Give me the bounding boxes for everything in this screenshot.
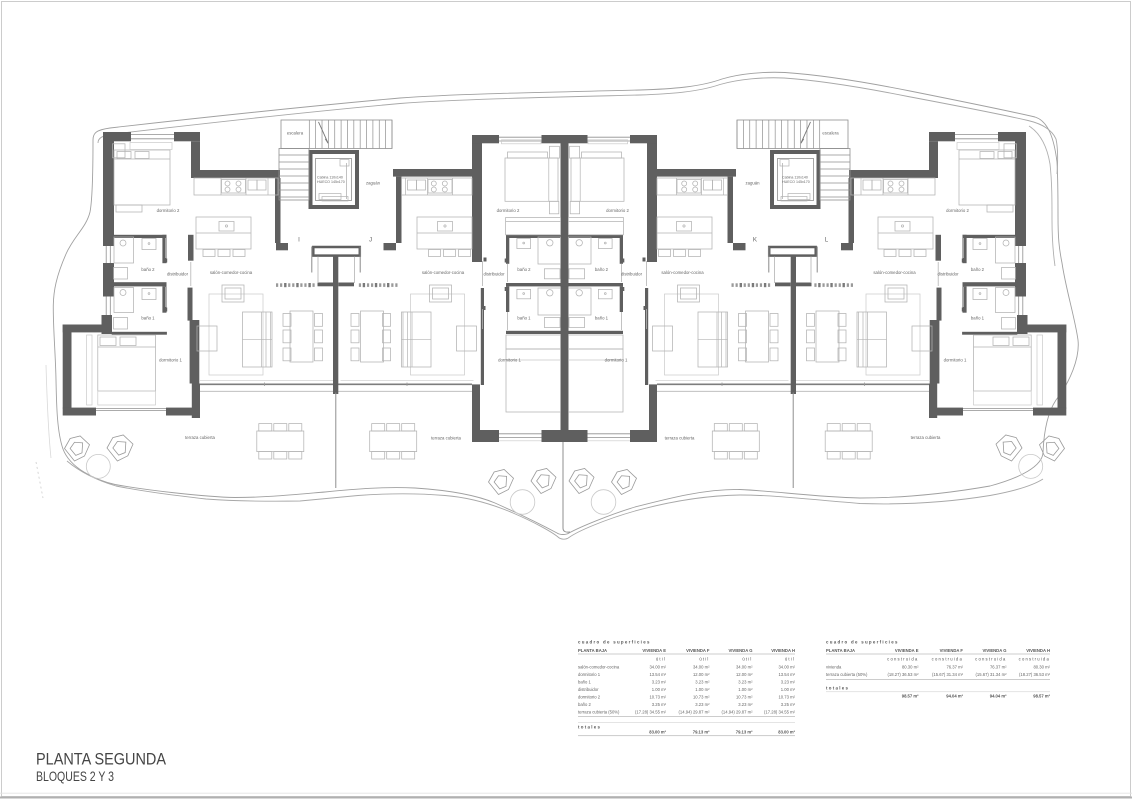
svg-text:terraza cubierta (50%): terraza cubierta (50%)	[826, 672, 868, 677]
svg-text:76.37 m²: 76.37 m²	[990, 665, 1007, 670]
svg-text:escalera: escalera	[287, 131, 304, 136]
svg-text:terraza cubierta (50%): terraza cubierta (50%)	[578, 710, 620, 715]
svg-text:baño 2: baño 2	[595, 267, 609, 272]
svg-text:3.25 m²: 3.25 m²	[781, 702, 796, 707]
svg-text:J: J	[369, 237, 372, 244]
svg-text:zaguán: zaguán	[745, 181, 760, 186]
svg-text:dormitorio 1: dormitorio 1	[578, 672, 601, 677]
svg-text:(14.94) 29.87 m²: (14.94) 29.87 m²	[722, 710, 754, 715]
svg-text:10.73 m²: 10.73 m²	[649, 695, 666, 700]
svg-text:PLANTA BAJA: PLANTA BAJA	[578, 648, 607, 653]
svg-text:3.25 m²: 3.25 m²	[652, 702, 667, 707]
svg-text:10.73 m²: 10.73 m²	[693, 695, 710, 700]
svg-text:baño 1: baño 1	[971, 316, 985, 321]
svg-text:distribuidor: distribuidor	[167, 272, 189, 277]
svg-text:baño 1: baño 1	[141, 316, 155, 321]
svg-text:3.23 m²: 3.23 m²	[652, 680, 667, 685]
svg-text:VIVIENDA E: VIVIENDA E	[895, 648, 919, 653]
svg-text:VIVIENDA F: VIVIENDA F	[940, 648, 964, 653]
svg-text:94.04 m²: 94.04 m²	[946, 694, 963, 699]
svg-text:12.00 m²: 12.00 m²	[736, 672, 753, 677]
svg-text:VIVIENDA H: VIVIENDA H	[1026, 648, 1050, 653]
svg-text:construida: construida	[887, 657, 918, 662]
svg-text:zaguán: zaguán	[366, 181, 381, 186]
svg-text:baño 1: baño 1	[595, 316, 609, 321]
svg-text:baño 2: baño 2	[517, 267, 531, 272]
svg-text:construida: construida	[932, 657, 963, 662]
svg-text:PLANTA BAJA: PLANTA BAJA	[826, 648, 855, 653]
svg-text:útil: útil	[785, 657, 795, 662]
svg-text:BLOQUES 2 Y 3: BLOQUES 2 Y 3	[36, 768, 114, 784]
svg-text:3.23 m²: 3.23 m²	[695, 680, 710, 685]
svg-text:vivienda: vivienda	[826, 665, 842, 670]
svg-text:dormitorio 1: dormitorio 1	[498, 358, 521, 363]
svg-text:(15.67) 31.34 m²: (15.67) 31.34 m²	[932, 672, 964, 677]
svg-text:(17.28) 34.55 m²: (17.28) 34.55 m²	[764, 710, 796, 715]
svg-text:VIVIENDA G: VIVIENDA G	[728, 648, 752, 653]
svg-text:10.73 m²: 10.73 m²	[778, 695, 795, 700]
svg-text:cuadro de superficies: cuadro de superficies	[578, 640, 651, 645]
svg-text:dormitorio 1: dormitorio 1	[159, 358, 182, 363]
svg-text:L: L	[825, 237, 829, 244]
svg-text:baño 1: baño 1	[578, 680, 591, 685]
svg-text:totales: totales	[578, 725, 601, 730]
svg-text:94.04 m²: 94.04 m²	[990, 694, 1007, 699]
svg-text:(14.94) 29.87 m²: (14.94) 29.87 m²	[679, 710, 711, 715]
svg-text:salón-comedor-cocina: salón-comedor-cocina	[210, 270, 253, 275]
svg-text:80.30 m²: 80.30 m²	[1033, 665, 1050, 670]
svg-text:(18.27) 36.53 m²: (18.27) 36.53 m²	[1019, 672, 1051, 677]
svg-text:baño 2: baño 2	[141, 267, 155, 272]
svg-text:salón-comedor-cocina: salón-comedor-cocina	[422, 270, 465, 275]
svg-text:baño 1: baño 1	[517, 316, 531, 321]
svg-text:útil: útil	[742, 657, 752, 662]
svg-text:VIVIENDA F: VIVIENDA F	[686, 648, 710, 653]
svg-text:terraza cubierta: terraza cubierta	[911, 435, 941, 440]
svg-text:34.00 m²: 34.00 m²	[693, 665, 710, 670]
svg-text:83.00 m²: 83.00 m²	[778, 730, 795, 735]
svg-text:dormitorio 2: dormitorio 2	[497, 208, 520, 213]
svg-text:Cabina 110x140: Cabina 110x140	[317, 176, 343, 180]
svg-text:1.00 m²: 1.00 m²	[652, 687, 667, 692]
svg-text:distribuidor: distribuidor	[483, 272, 505, 277]
svg-text:dormitorio 1: dormitorio 1	[605, 358, 628, 363]
svg-text:dormitorio 2: dormitorio 2	[946, 208, 969, 213]
svg-text:3.23 m²: 3.23 m²	[738, 702, 753, 707]
svg-text:distribuidor: distribuidor	[621, 272, 643, 277]
svg-text:I: I	[298, 237, 300, 244]
svg-text:Cabina 110x140: Cabina 110x140	[782, 176, 808, 180]
svg-text:13.54 m²: 13.54 m²	[649, 672, 666, 677]
svg-text:salón-comedor-cocina: salón-comedor-cocina	[661, 270, 704, 275]
svg-text:dormitorio 1: dormitorio 1	[944, 358, 967, 363]
svg-text:útil: útil	[656, 657, 666, 662]
svg-text:dormitorio 2: dormitorio 2	[578, 695, 601, 700]
svg-text:98.57 m²: 98.57 m²	[902, 694, 919, 699]
svg-text:dormitorio 2: dormitorio 2	[157, 208, 180, 213]
svg-text:dormitorio 2: dormitorio 2	[606, 208, 629, 213]
svg-text:3.23 m²: 3.23 m²	[781, 680, 796, 685]
svg-text:construida: construida	[975, 657, 1006, 662]
svg-text:98.57 m²: 98.57 m²	[1033, 694, 1050, 699]
svg-text:13.54 m²: 13.54 m²	[778, 672, 795, 677]
svg-text:HUECO 145x170: HUECO 145x170	[317, 180, 345, 184]
svg-text:3.23 m²: 3.23 m²	[738, 680, 753, 685]
svg-text:VIVIENDA G: VIVIENDA G	[982, 648, 1006, 653]
svg-text:12.00 m²: 12.00 m²	[693, 672, 710, 677]
svg-text:HUECO 145x170: HUECO 145x170	[782, 180, 810, 184]
svg-text:80.30 m²: 80.30 m²	[902, 665, 919, 670]
svg-text:baño 2: baño 2	[578, 702, 591, 707]
svg-text:10.73 m²: 10.73 m²	[736, 695, 753, 700]
svg-text:terraza cubierta: terraza cubierta	[431, 436, 461, 441]
svg-text:VIVIENDA H: VIVIENDA H	[771, 648, 795, 653]
svg-text:cuadro de superficies: cuadro de superficies	[826, 640, 899, 645]
svg-text:salón-comedor-cocina: salón-comedor-cocina	[873, 270, 916, 275]
svg-text:PLANTA SEGUNDA: PLANTA SEGUNDA	[36, 751, 166, 769]
svg-text:escalera: escalera	[822, 131, 839, 136]
svg-text:distribuidor: distribuidor	[937, 272, 959, 277]
svg-text:terraza cubierta: terraza cubierta	[665, 436, 695, 441]
svg-text:(18.27) 36.53 m²: (18.27) 36.53 m²	[888, 672, 920, 677]
svg-text:VIVIENDA E: VIVIENDA E	[642, 648, 666, 653]
svg-text:1.00 m²: 1.00 m²	[781, 687, 796, 692]
svg-text:construida: construida	[1019, 657, 1050, 662]
svg-text:(15.67) 31.34 m²: (15.67) 31.34 m²	[976, 672, 1008, 677]
svg-text:baño 2: baño 2	[971, 267, 985, 272]
svg-text:79.13 m²: 79.13 m²	[693, 730, 710, 735]
svg-text:76.37 m²: 76.37 m²	[946, 665, 963, 670]
svg-text:(17.28) 34.55 m²: (17.28) 34.55 m²	[635, 710, 667, 715]
svg-text:terraza cubierta: terraza cubierta	[185, 435, 215, 440]
svg-text:83.00 m²: 83.00 m²	[649, 730, 666, 735]
svg-text:totales: totales	[826, 686, 849, 691]
svg-text:3.23 m²: 3.23 m²	[695, 702, 710, 707]
svg-text:salón-comedor-cocina: salón-comedor-cocina	[578, 665, 620, 670]
svg-text:34.00 m²: 34.00 m²	[778, 665, 795, 670]
svg-text:útil: útil	[699, 657, 709, 662]
svg-text:1.00 m²: 1.00 m²	[695, 687, 710, 692]
svg-text:1.00 m²: 1.00 m²	[738, 687, 753, 692]
svg-text:34.00 m²: 34.00 m²	[649, 665, 666, 670]
svg-text:distribuidor: distribuidor	[578, 687, 599, 692]
svg-text:34.00 m²: 34.00 m²	[736, 665, 753, 670]
svg-text:79.13 m²: 79.13 m²	[736, 730, 753, 735]
